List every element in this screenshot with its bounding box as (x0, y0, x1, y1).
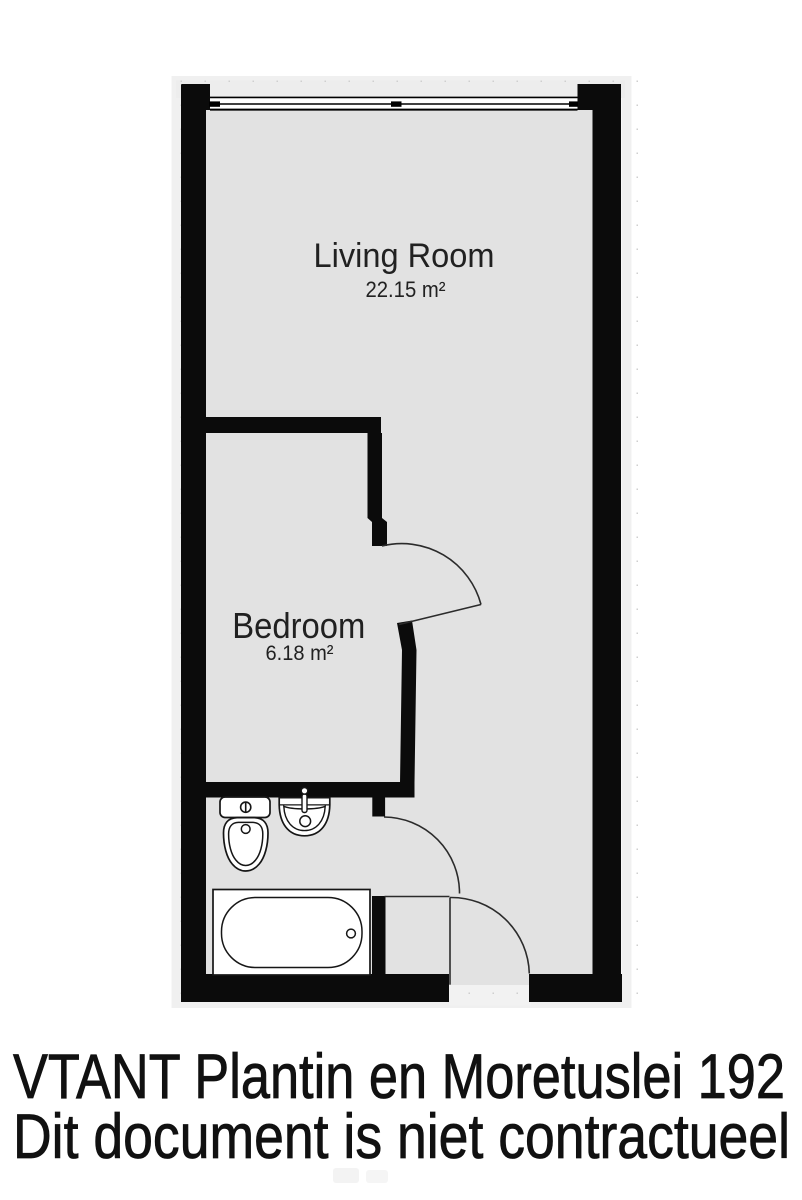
svg-text:Living Room: Living Room (314, 237, 495, 275)
svg-text:22.15 m²: 22.15 m² (366, 277, 446, 302)
svg-text:6.18 m²: 6.18 m² (266, 642, 334, 665)
svg-text:Bedroom: Bedroom (232, 605, 365, 646)
svg-text:Dit document is niet contractu: Dit document is niet contractueel (13, 1102, 790, 1172)
